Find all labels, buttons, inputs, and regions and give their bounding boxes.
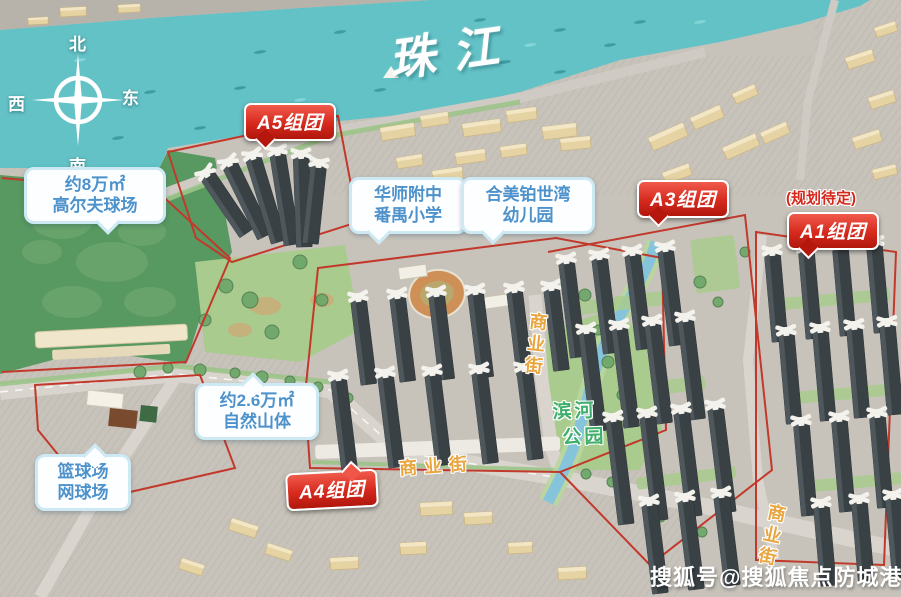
golf-area-name: 高尔夫球场 xyxy=(35,195,155,216)
tennis-court-label: 网球场 xyxy=(46,482,120,503)
watermark: 搜狐号@搜狐焦点防城港站 xyxy=(650,560,901,592)
school-name-line1: 华师附中 xyxy=(360,184,456,205)
bubble-school: 华师附中 番禺小学 xyxy=(349,177,467,234)
badge-a4: A4组团 xyxy=(285,469,379,512)
bubble-mountain: 约2.6万㎡ 自然山体 xyxy=(195,383,319,440)
badge-a5: A5组团 xyxy=(244,103,336,141)
badge-a4-label: A4组团 xyxy=(299,479,366,503)
kindergarten-name-line1: 合美铂世湾 xyxy=(472,184,584,205)
park-label-line1: 滨河 xyxy=(552,398,606,425)
compass-west: 西 xyxy=(8,90,25,115)
bubble-golf-course: 约8万㎡ 高尔夫球场 xyxy=(24,167,166,224)
street-label-south: 商业街 xyxy=(398,449,475,480)
compass: 北 南 西 东 xyxy=(6,28,156,178)
golf-area-size: 约8万㎡ xyxy=(35,174,155,195)
park-label: 滨河 公园 xyxy=(552,398,607,451)
compass-north: 北 xyxy=(69,30,86,55)
mountain-area-name: 自然山体 xyxy=(206,411,308,432)
basketball-court-label: 篮球场 xyxy=(46,461,120,482)
masterplan-map: 珠江 北 南 西 东 A5组团 A3组团 A1组团 A4组团 (规划待定) 约8… xyxy=(0,0,901,597)
badge-a3: A3组团 xyxy=(637,180,729,218)
compass-east: 东 xyxy=(122,84,139,109)
park-label-line2: 公园 xyxy=(562,424,607,451)
bubble-kindergarten: 合美铂世湾 幼儿园 xyxy=(461,177,595,234)
badge-a1: A1组团 xyxy=(787,212,879,250)
bubble-courts: 篮球场 网球场 xyxy=(35,454,131,511)
a1-planning-note: (规划待定) xyxy=(786,187,856,208)
